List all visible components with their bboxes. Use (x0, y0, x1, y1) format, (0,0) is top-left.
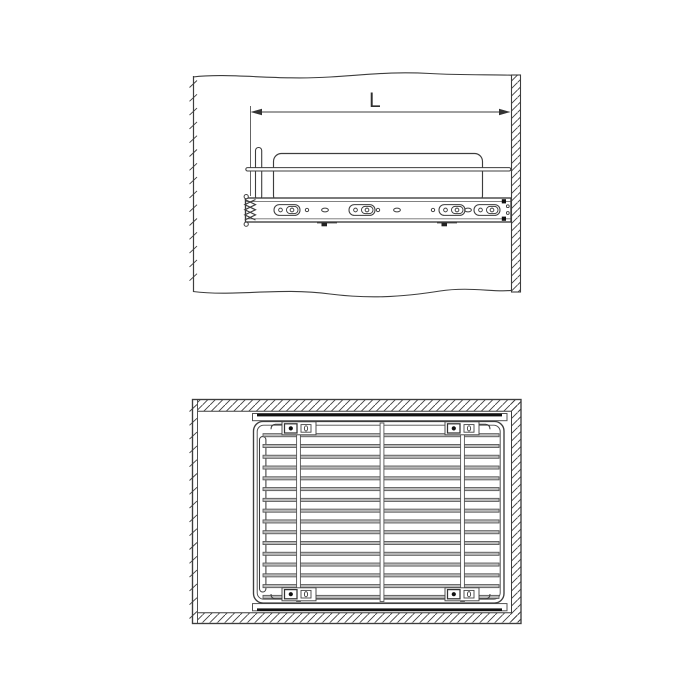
break-line-tick (190, 556, 198, 563)
side-top-break-line (193, 73, 511, 78)
bracket-screw-dot (452, 592, 456, 596)
break-line-tick (190, 474, 198, 481)
basket-cross-wire (297, 423, 301, 602)
rail-end-mark (502, 217, 506, 221)
cabinet-bottom-wall (198, 613, 521, 624)
rail-tab-left-lug (322, 223, 328, 226)
break-line-tick (190, 584, 198, 591)
break-line-tick (190, 460, 198, 467)
slide-rail-bottom-edge (257, 608, 502, 611)
basket-top-wire (246, 168, 511, 171)
break-line-tick (190, 501, 198, 508)
bracket-screw-dot (289, 592, 293, 596)
break-line-tick (190, 529, 198, 536)
side-bottom-break-line (193, 289, 511, 297)
clip-bulb-top (244, 195, 248, 199)
basket-front-post-wire (256, 148, 262, 200)
plan-left-break-ticks (190, 405, 198, 619)
basket-cross-wire (461, 423, 465, 602)
break-line-tick (190, 543, 198, 550)
break-line-tick (190, 405, 198, 412)
dimension-arrow-left (251, 109, 263, 115)
break-line-tick (190, 487, 198, 494)
cabinet-right-wall (512, 400, 521, 623)
rail-tab-right-lug (442, 223, 448, 226)
slide-rail-top-edge (257, 414, 502, 417)
dimension-label: L (369, 89, 381, 112)
break-line-tick (190, 418, 198, 425)
break-line-tick (190, 570, 198, 577)
break-line-tick (190, 598, 198, 605)
break-line-tick (190, 446, 198, 453)
side-view: L (190, 73, 521, 297)
clip-bulb-bottom (244, 222, 248, 226)
basket-front-wire-capsule (260, 437, 266, 593)
basket-cross-wire (380, 423, 384, 602)
technical-drawing-canvas: L (0, 0, 700, 700)
technical-drawing: L (0, 0, 700, 700)
break-line-tick (190, 432, 198, 439)
break-line-tick (190, 515, 198, 522)
break-line-tick (190, 612, 198, 619)
dimension-arrow-right (499, 109, 511, 115)
bracket-screw-dot (289, 426, 293, 430)
cabinet-wall-hatched (512, 75, 521, 292)
plan-view (190, 400, 522, 624)
cabinet-top-wall (198, 400, 521, 411)
basket-loop-wire (274, 154, 483, 204)
bracket-screw-dot (452, 426, 456, 430)
rail-end-mark (502, 199, 506, 203)
